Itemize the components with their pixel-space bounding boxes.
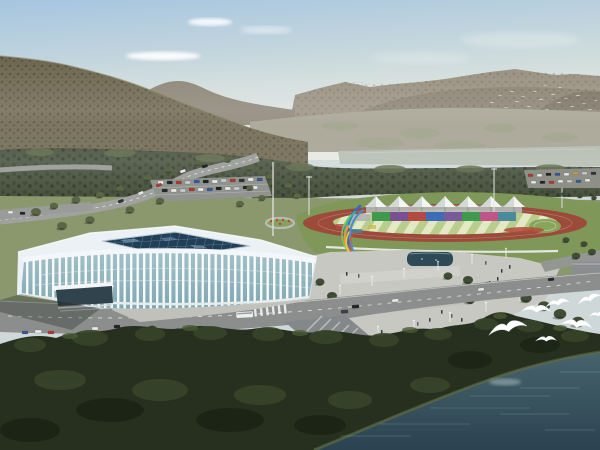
car [230,179,236,182]
car [239,179,245,182]
car [591,172,596,175]
car [22,331,28,334]
car [171,189,177,192]
rainbow-stands [372,212,516,221]
person [358,274,360,278]
car [114,325,120,328]
car [531,181,536,184]
car [567,180,572,183]
car [207,188,213,191]
car [582,172,587,175]
stand-segment [462,212,480,221]
car [216,187,222,190]
stand-segment [444,212,462,221]
stand-segment [390,212,408,221]
car [167,181,173,184]
egret [589,312,600,317]
car [564,173,569,176]
scene-canvas [0,0,600,450]
flowerbed [504,227,544,233]
cloud [460,32,580,48]
car [257,178,263,181]
stand-segment [480,212,498,221]
tree [553,309,567,320]
car [546,173,551,176]
car [478,288,484,291]
car [212,180,218,183]
person [485,261,487,265]
car [198,188,204,191]
tree [591,196,597,201]
person [417,322,419,326]
car [573,172,578,175]
car [48,331,54,334]
car [392,299,399,303]
person [346,272,348,276]
car [176,181,182,184]
person [501,269,503,273]
car [35,330,42,333]
car [162,189,168,192]
car [185,181,191,184]
person [429,318,431,322]
car [194,180,200,183]
car [225,187,231,190]
cloud [188,18,232,26]
stadium-rendering [0,0,600,450]
person [441,310,443,314]
car [537,174,542,177]
water-glint [489,379,521,386]
car [221,179,227,182]
stand-segment [408,212,426,221]
bus [236,311,253,318]
reflecting-pond [407,252,453,266]
car [92,327,98,330]
stand-segment [426,212,444,221]
person [451,314,453,318]
car [203,180,209,183]
car [540,181,545,184]
car [341,310,348,314]
car [180,189,186,192]
egret [576,292,600,305]
car [234,187,240,190]
cloud [240,26,292,33]
car [548,278,554,281]
car [189,188,195,191]
car [8,211,13,214]
stand-segment [372,212,390,221]
cloud [126,52,200,60]
car [352,305,359,309]
car [549,181,554,184]
car [20,212,25,215]
car [248,178,254,181]
car [555,173,560,176]
person [461,318,463,322]
person [509,265,511,269]
roundabout [266,218,294,228]
car [585,179,590,182]
stand-structure [366,206,522,213]
car [528,174,533,177]
car [558,180,563,183]
atmospheric-haze-low [0,125,600,195]
person [497,277,499,281]
car [576,180,581,183]
stand-segment [498,212,516,221]
